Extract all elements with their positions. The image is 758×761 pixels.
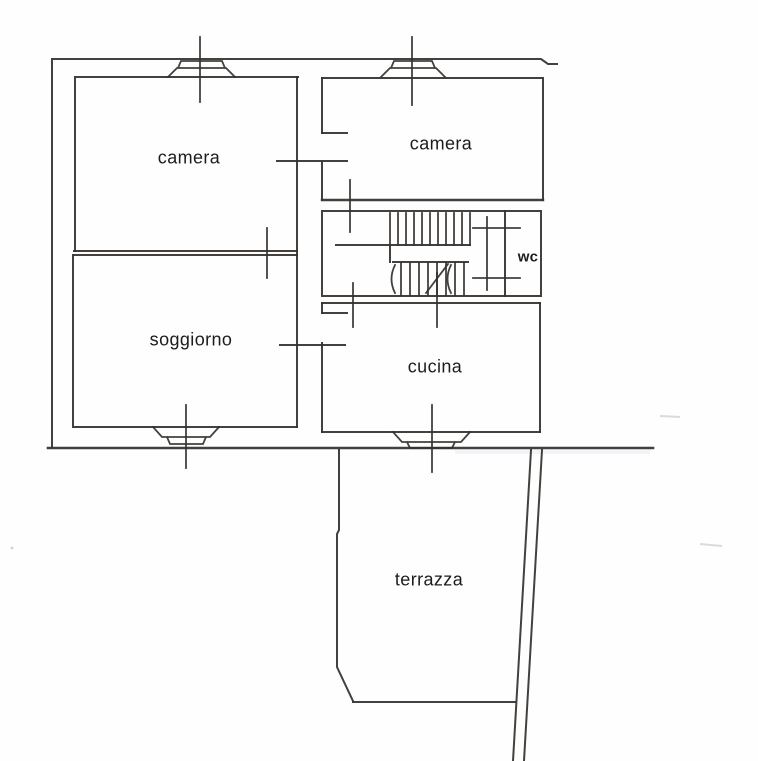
room-label-camera-2: camera bbox=[410, 134, 472, 155]
window-cucina bbox=[393, 405, 470, 472]
scan-artifacts bbox=[11, 416, 722, 549]
room-label-cucina: cucina bbox=[408, 357, 462, 378]
room-label-wc: wc bbox=[518, 249, 538, 266]
room-label-soggiorno: soggiorno bbox=[150, 330, 233, 351]
floor-plan-page: camera camera soggiorno cucina wc terraz… bbox=[0, 0, 758, 761]
wc-walls bbox=[473, 211, 520, 296]
window-camera-2 bbox=[381, 37, 445, 105]
outer-boundary-wall bbox=[48, 59, 653, 448]
floor-plan-canvas bbox=[0, 0, 758, 761]
room-label-camera-1: camera bbox=[158, 148, 220, 169]
terrazza-outline bbox=[337, 450, 542, 761]
door-marks bbox=[267, 180, 437, 327]
window-camera-1 bbox=[168, 37, 235, 102]
room-label-terrazza: terrazza bbox=[395, 570, 463, 591]
window-soggiorno bbox=[153, 405, 219, 468]
staircase bbox=[322, 211, 541, 296]
